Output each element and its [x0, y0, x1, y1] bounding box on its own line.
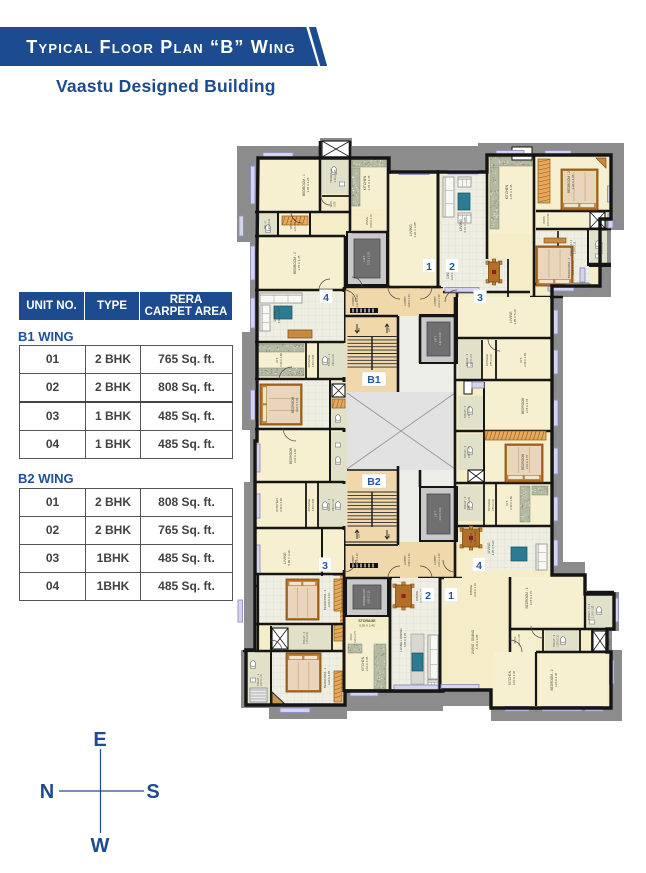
svg-text:LOBBY: LOBBY — [351, 555, 355, 565]
svg-text:STORE LIFT: STORE LIFT — [362, 588, 366, 605]
svg-text:S: S — [146, 781, 159, 803]
svg-text:3.05 X 5.20: 3.05 X 5.20 — [491, 540, 495, 555]
svg-text:2.15 X 1.05: 2.15 X 1.05 — [334, 169, 337, 182]
svg-text:TOILET - 2: TOILET - 2 — [303, 631, 306, 644]
svg-text:1.35 X 2.10: 1.35 X 2.10 — [558, 634, 560, 646]
svg-text:2.16 X 0.20: 2.16 X 0.20 — [602, 241, 604, 253]
svg-text:B2: B2 — [367, 476, 381, 488]
svg-text:3.20 X 4.45: 3.20 X 4.45 — [554, 672, 558, 687]
svg-text:0.95 X 2.15: 0.95 X 2.15 — [367, 590, 370, 603]
svg-text:KIT.: KIT. — [505, 500, 509, 505]
svg-text:KIT.: KIT. — [519, 357, 523, 362]
svg-text:1.98 X 2.43: 1.98 X 2.43 — [407, 294, 411, 308]
svg-text:KITCHEN: KITCHEN — [275, 498, 279, 512]
svg-text:PASSAGE: PASSAGE — [307, 354, 311, 367]
svg-text:DINING: DINING — [469, 584, 473, 595]
svg-text:1.42 X 2.00: 1.42 X 2.00 — [439, 332, 442, 345]
svg-text:TOILET - 2: TOILET - 2 — [553, 634, 556, 647]
svg-text:2: 2 — [425, 590, 431, 602]
svg-text:0.55 X 2.45: 0.55 X 2.45 — [359, 624, 375, 628]
svg-text:1.37 X 2.45: 1.37 X 2.45 — [469, 405, 471, 417]
svg-text:3.00 X 3.70: 3.00 X 3.70 — [525, 454, 529, 469]
svg-text:1.35 X 2.30: 1.35 X 2.30 — [307, 631, 309, 643]
svg-text:3: 3 — [322, 560, 328, 572]
svg-text:DINING: DINING — [415, 590, 419, 601]
svg-text:3.65 X 4.35: 3.65 X 4.35 — [297, 255, 301, 270]
svg-text:0.90 X 1.65: 0.90 X 1.65 — [519, 633, 521, 645]
svg-text:LIFT: LIFT — [362, 255, 366, 261]
svg-text:0.90 X 2.75: 0.90 X 2.75 — [369, 214, 373, 228]
svg-text:TOILET - 1: TOILET - 1 — [329, 169, 333, 183]
svg-text:2.40 X 1.50: 2.40 X 1.50 — [523, 353, 527, 367]
svg-text:4.91 X 3.05: 4.91 X 3.05 — [413, 222, 417, 238]
svg-text:DR - 2: DR - 2 — [263, 221, 267, 229]
svg-text:3.65 X 2.45: 3.65 X 2.45 — [367, 175, 371, 190]
svg-text:2.40 X 2.00: 2.40 X 2.00 — [279, 498, 283, 512]
svg-text:LOBBY: LOBBY — [403, 555, 407, 565]
svg-text:2.93 X 0.90: 2.93 X 0.90 — [312, 498, 315, 511]
svg-text:3.20 X 1.10: 3.20 X 1.10 — [473, 583, 477, 597]
svg-text:TOILET - 2: TOILET - 2 — [464, 496, 467, 509]
svg-text:2.40 X 1.30: 2.40 X 1.30 — [469, 496, 471, 508]
svg-text:PASS: PASS — [542, 216, 546, 223]
svg-text:2.55 X 0.90: 2.55 X 0.90 — [493, 498, 495, 510]
svg-text:2.40 X 1.15: 2.40 X 1.15 — [471, 353, 473, 365]
svg-text:6.41 X 3.05: 6.41 X 3.05 — [463, 217, 467, 233]
svg-text:TOILET - 2: TOILET - 2 — [466, 353, 469, 366]
svg-text:2.55 X 0.90: 2.55 X 0.90 — [491, 353, 493, 365]
svg-text:3.00 X 4.10: 3.00 X 4.10 — [327, 592, 331, 607]
svg-text:DINING: DINING — [469, 532, 473, 543]
svg-text:3.05 X 5.30: 3.05 X 5.30 — [277, 308, 281, 323]
svg-text:3.60 X 3.86: 3.60 X 3.86 — [293, 448, 297, 463]
svg-text:5.05 X 3.30: 5.05 X 3.30 — [287, 550, 291, 566]
svg-text:PASSAGE: PASSAGE — [307, 498, 311, 511]
svg-text:W: W — [91, 835, 110, 857]
svg-text:LIFT: LIFT — [434, 511, 438, 517]
svg-text:TOILET - 1: TOILET - 1 — [464, 405, 467, 418]
svg-text:0.96 X 2.75: 0.96 X 2.75 — [355, 630, 357, 642]
svg-text:TOILET - 1 / 2: TOILET - 1 / 2 — [569, 239, 573, 256]
svg-text:UP: UP — [387, 328, 391, 332]
svg-text:PASS: PASS — [365, 217, 369, 225]
svg-text:LOBBY: LOBBY — [351, 296, 355, 306]
svg-text:2.15 X 1.00: 2.15 X 1.00 — [592, 605, 595, 618]
svg-text:6.41 X 3.05: 6.41 X 3.05 — [475, 634, 479, 649]
svg-text:1.05 X 0.90: 1.05 X 0.90 — [547, 213, 550, 226]
svg-text:3.00 X 3.00: 3.00 X 3.00 — [295, 397, 299, 412]
svg-text:3.05 X 3.78: 3.05 X 3.78 — [525, 398, 529, 413]
svg-text:1.25 X 2.10: 1.25 X 2.10 — [268, 218, 271, 231]
svg-text:2.02 X 2.00: 2.02 X 2.00 — [439, 507, 442, 520]
svg-text:UP: UP — [357, 534, 361, 538]
svg-text:TOILET - 1: TOILET - 1 — [328, 353, 331, 366]
svg-text:3.00 X 2.45: 3.00 X 2.45 — [365, 656, 369, 671]
svg-text:LIFT: LIFT — [434, 336, 438, 342]
svg-text:PASS: PASS — [513, 636, 517, 643]
svg-text:3.00 X 2.45: 3.00 X 2.45 — [512, 670, 516, 685]
svg-text:LOBBY: LOBBY — [433, 296, 437, 306]
svg-text:PASS: PASS — [349, 633, 353, 640]
svg-text:N: N — [40, 781, 54, 803]
svg-text:3: 3 — [477, 292, 483, 304]
svg-text:PASSAGE: PASSAGE — [485, 354, 489, 366]
svg-text:3.05 X 4.25: 3.05 X 4.25 — [306, 177, 310, 192]
svg-text:2.40 X 1.80: 2.40 X 1.80 — [279, 353, 283, 367]
svg-text:WR - 2: WR - 2 — [289, 220, 293, 229]
svg-text:2.16 X 2.15: 2.16 X 2.15 — [574, 241, 577, 254]
svg-text:2.02 X 2.29: 2.02 X 2.29 — [367, 252, 370, 265]
svg-text:TOILET - 2: TOILET - 2 — [464, 445, 467, 458]
svg-text:4: 4 — [323, 292, 329, 304]
svg-text:TOILET - 2: TOILET - 2 — [328, 498, 331, 511]
svg-text:1: 1 — [426, 261, 432, 273]
svg-text:PASSAGE: PASSAGE — [487, 499, 491, 511]
svg-text:3.05 X 4.70: 3.05 X 4.70 — [571, 260, 575, 275]
svg-text:2.93 X 0.90: 2.93 X 0.90 — [312, 354, 315, 367]
svg-text:2.07 X 1.10: 2.07 X 1.10 — [261, 673, 263, 685]
svg-text:3.05 X 5.20: 3.05 X 5.20 — [513, 309, 517, 325]
svg-text:B1: B1 — [367, 374, 381, 386]
svg-text:6.95 X 3.05: 6.95 X 3.05 — [403, 632, 407, 647]
svg-text:LOBBY: LOBBY — [433, 555, 437, 565]
svg-text:4: 4 — [476, 560, 482, 572]
svg-text:1.42 X 2.29: 1.42 X 2.29 — [355, 553, 359, 567]
svg-text:0.90: 0.90 — [334, 201, 337, 206]
svg-text:TOILET - 1: TOILET - 1 — [257, 673, 260, 686]
svg-text:2.05 X 1.37: 2.05 X 1.37 — [469, 445, 471, 457]
svg-text:1: 1 — [448, 590, 454, 602]
svg-text:LOBBY: LOBBY — [403, 296, 407, 306]
svg-text:2.00 X 2.00: 2.00 X 2.00 — [437, 553, 441, 567]
svg-text:3.05 X 4.70: 3.05 X 4.70 — [529, 590, 533, 605]
svg-text:3.20 X 4.35: 3.20 X 4.35 — [571, 174, 575, 189]
svg-text:2: 2 — [449, 261, 455, 273]
svg-text:3.20 X 6.55: 3.20 X 6.55 — [327, 670, 331, 685]
svg-text:2.40 X 1.60: 2.40 X 1.60 — [509, 496, 513, 510]
svg-text:KIT.: KIT. — [275, 357, 279, 362]
svg-text:E: E — [93, 729, 106, 751]
svg-text:TOILET - 1 / 2: TOILET - 1 / 2 — [587, 603, 591, 620]
svg-text:2.40 X 1.00: 2.40 X 1.00 — [333, 353, 335, 365]
svg-text:3.20 X 1.20: 3.20 X 1.20 — [473, 531, 477, 545]
svg-text:2.00 X 2.00: 2.00 X 2.00 — [437, 294, 441, 308]
svg-text:1.98 X 2.43: 1.98 X 2.43 — [407, 553, 411, 567]
svg-text:2.40 X 1.00: 2.40 X 1.00 — [333, 498, 335, 510]
svg-text:STORAGE: STORAGE — [358, 619, 376, 623]
svg-text:3.65 X 2.45: 3.65 X 2.45 — [509, 184, 513, 199]
